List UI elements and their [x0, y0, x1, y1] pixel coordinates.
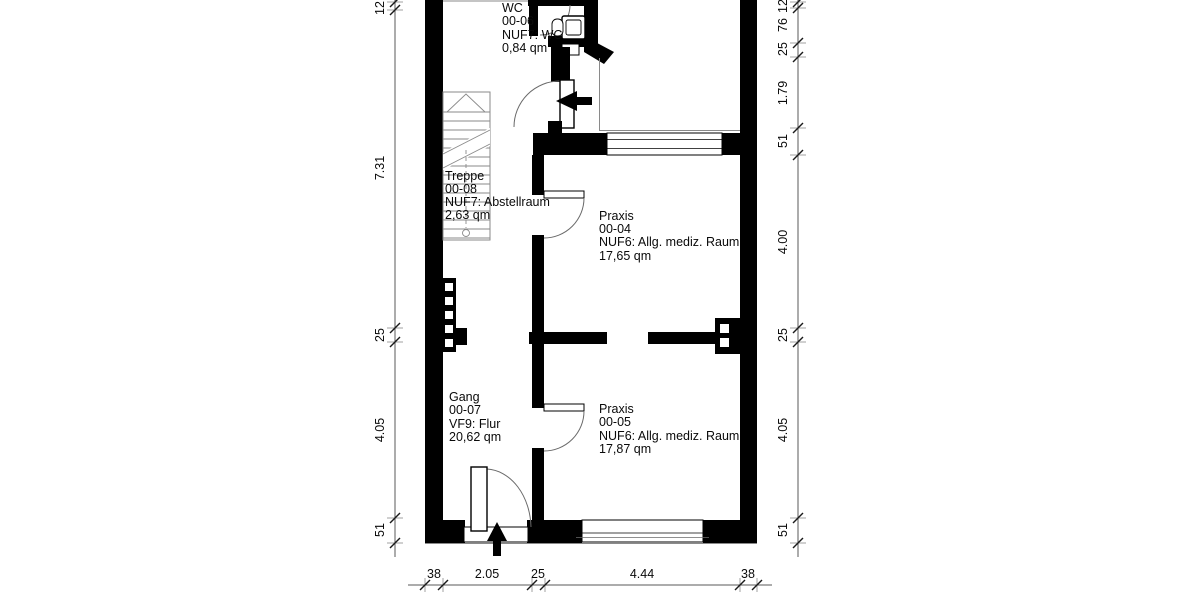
dim-value: 4.05	[373, 418, 387, 442]
chimney-flue	[445, 283, 453, 291]
dim-value: 4.05	[776, 418, 790, 442]
dim-value: 2.05	[475, 567, 499, 581]
wall-notch	[548, 121, 562, 133]
room-number: 00-04	[599, 222, 631, 236]
wall-left	[425, 0, 443, 543]
room-area: 20,62 qm	[449, 430, 501, 444]
room-area: 17,87 qm	[599, 442, 651, 456]
dimension-chain-right: 12 76 25 1.79 51 4.00 25 4.05 51	[776, 0, 806, 557]
chimney-flue	[720, 324, 729, 333]
chimney-flue	[445, 339, 453, 347]
dim-value: 25	[531, 567, 545, 581]
room-name: Praxis	[599, 402, 634, 416]
wall-right	[740, 0, 757, 543]
toilet-cistern-inner	[566, 20, 581, 35]
chimney-block	[715, 318, 742, 354]
wall-bottom-segment	[425, 520, 465, 543]
dim-value: 4.00	[776, 230, 790, 254]
room-number: 00-05	[599, 415, 631, 429]
wall-segment	[648, 332, 715, 344]
entry-arrow-shaft	[575, 97, 592, 105]
room-label-praxis-05: Praxis 00-05 NUF6: Allg. mediz. Raum 17,…	[599, 402, 739, 456]
door-swing-arc	[544, 198, 584, 238]
room-name: WC	[502, 1, 523, 15]
dim-value: 51	[373, 523, 387, 537]
room-usage: NUF6: Allg. mediz. Raum	[599, 429, 739, 443]
praxis-05-door	[544, 404, 584, 451]
wall-bottom-segment	[703, 520, 757, 543]
wall-segment	[532, 155, 544, 195]
chimney-flue	[445, 311, 453, 319]
stair-walk-line-start	[463, 230, 470, 237]
room-area: 0,84 qm	[502, 41, 547, 55]
dim-value: 1.79	[776, 81, 790, 105]
dim-value: 38	[427, 567, 441, 581]
door-swing-arc	[514, 81, 560, 127]
south-window	[576, 520, 709, 542]
dim-value: 12	[776, 0, 790, 13]
wall-segment	[722, 133, 757, 155]
interior-wall-horizontal	[529, 318, 742, 354]
door-leaf	[544, 191, 584, 198]
wall-bump	[456, 328, 467, 345]
chimney-flue	[445, 325, 453, 333]
door-swing-arc	[544, 411, 584, 451]
door-swing-arc	[487, 469, 531, 527]
wall-segment	[533, 133, 607, 155]
room-number: 00-07	[449, 403, 481, 417]
room-label-gang: Gang 00-07 VF9: Flur 20,62 qm	[449, 390, 501, 444]
praxis-04-door	[544, 191, 584, 238]
dim-value: 7.31	[373, 156, 387, 180]
chimney-flue	[720, 338, 729, 347]
wall-segment	[532, 344, 544, 408]
room-number: 00-06	[502, 14, 534, 28]
room-usage: NUF7: Abstellraum	[445, 195, 550, 209]
dim-value: 38	[741, 567, 755, 581]
door-leaf	[471, 467, 487, 531]
wall-segment	[532, 235, 544, 332]
room-usage: VF9: Flur	[449, 417, 500, 431]
wall-segment	[529, 332, 607, 344]
window-bottom	[582, 520, 703, 542]
dim-value: 51	[776, 134, 790, 148]
dimension-chain-bottom: 38 2.05 25 4.44 38	[408, 567, 772, 592]
dim-value: 25	[373, 328, 387, 342]
room-name: Gang	[449, 390, 480, 404]
dim-value: 4.44	[630, 567, 654, 581]
door-leaf	[544, 404, 584, 411]
wall-segment	[532, 448, 544, 520]
room-number: 00-08	[445, 182, 477, 196]
room-usage: NUF7: WC	[502, 28, 562, 42]
window-top	[607, 133, 722, 155]
door-jamb-wall	[551, 47, 570, 82]
floor-plan-canvas: WC 00-06 NUF7: WC 0,84 qm Treppe 00-08 N…	[0, 0, 1200, 600]
wall-bottom-segment	[527, 520, 582, 543]
corridor-entry-door	[514, 58, 740, 131]
room-area: 2,63 qm	[445, 208, 490, 222]
room-name: Praxis	[599, 209, 634, 223]
dim-value: 51	[776, 523, 790, 537]
entry-arrow-shaft	[493, 539, 501, 556]
chimney-flue	[445, 297, 453, 305]
exterior-walls	[425, 0, 757, 544]
dim-value: 25	[776, 328, 790, 342]
room-usage: NUF6: Allg. mediz. Raum	[599, 235, 739, 249]
dim-value: 76	[776, 18, 790, 32]
room-name: Treppe	[445, 169, 484, 183]
room-area: 17,65 qm	[599, 249, 651, 263]
left-wall-detail	[443, 278, 467, 352]
dim-value: 25	[776, 42, 790, 56]
room-label-praxis-04: Praxis 00-04 NUF6: Allg. mediz. Raum 17,…	[599, 209, 739, 263]
dimension-chain-left: 12 7.31 25 4.05 51	[373, 0, 403, 557]
entrance-door	[464, 467, 531, 556]
dim-value: 12	[373, 1, 387, 15]
